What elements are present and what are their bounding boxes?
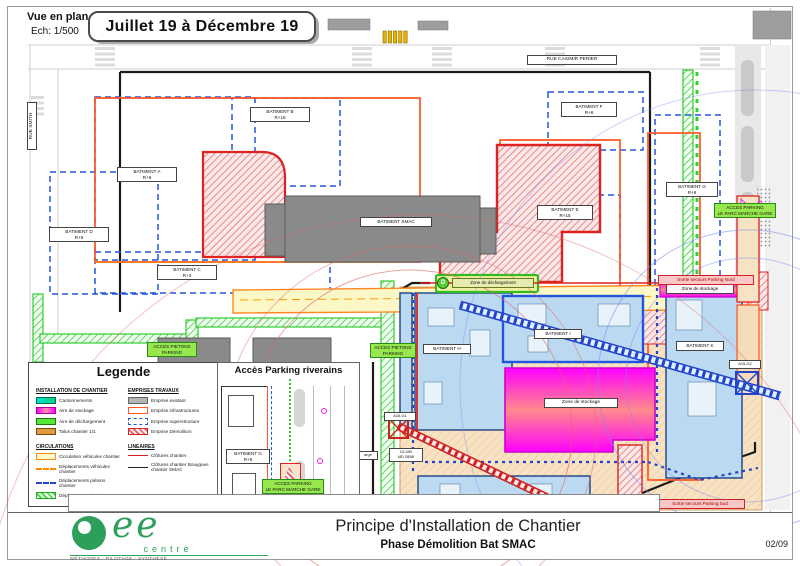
building-label-k: BATIMENT K [676, 341, 724, 351]
exit-label-text: Sortie secours Parking Nord [677, 277, 734, 282]
company-logo-subtext: centre [68, 544, 268, 554]
access-label-line: PARKING [372, 351, 414, 357]
crane-note-line: MD 285B [391, 455, 421, 460]
building-name: BATIMENT F [576, 104, 603, 109]
building-label-a: BATIMENT AR+6 [117, 167, 177, 182]
demolition-swatch [128, 428, 148, 435]
building-level: R+16 [252, 115, 308, 121]
gold-crossing-marks [383, 31, 407, 43]
building-level: R+6 [668, 190, 716, 196]
legend-section-heading: LINEAIRES [128, 444, 214, 450]
sortie-secours-sud-label: Sortie secours Parking Sud [655, 499, 745, 509]
building-label-f: BATIMENT FR+6 [561, 102, 617, 117]
legend-item: Emprise superstructure [128, 418, 214, 425]
talus-swatch [36, 428, 56, 435]
building-level: R+3 [159, 273, 215, 279]
drawing-sheet: Vue en plan Ech: 1/500 Juillet 19 à Déce… [0, 0, 800, 566]
inset-curb-line [344, 386, 345, 506]
building-name: BATIMENT G [234, 451, 262, 456]
pietons-dashed-swatch [36, 482, 56, 484]
zone-label-text: Zone de stockage [562, 400, 600, 405]
circulation-swatch [36, 453, 56, 460]
inset-acces-parking-label: ACCES PARKINGLE PARC MARCHE GARE [262, 479, 324, 494]
access-label-line: ACCES PIETONS [374, 345, 411, 350]
acces-parking-marche-gare-label: ACCES PARKINGLE PARC MARCHE GARE [714, 203, 776, 218]
legend-item-label: Emprise infrastructures [151, 408, 199, 413]
building-label-smac: BATIMENT SMAC [360, 217, 432, 227]
legend-item: Déplacements piétons chantier [36, 478, 122, 489]
street-label-text: RUE CASIMIR PERIER [547, 57, 598, 62]
legend-column-left: INSTALLATION DE CHANTIER Cantonnements A… [36, 384, 122, 502]
superstructure-swatch [128, 418, 148, 425]
legend-item-label: Clôtures chantier Bouygues chantier SMAC [151, 462, 214, 473]
legend-item-label: Emprise superstructure [151, 419, 199, 424]
inset-title: Accès Parking riverains [218, 365, 359, 376]
building-label-h: BATIMENT H [423, 344, 471, 354]
building-label-g: BATIMENT GR+6 [666, 182, 718, 197]
logo-divider-line [70, 555, 268, 556]
company-logo-text: ee [112, 505, 161, 546]
building-level: R+15 [539, 213, 591, 219]
building-level: R+6 [563, 110, 615, 116]
acces-pietons-parking-label-1: ACCES PIETONSPARKING [147, 342, 197, 357]
access-label-line: LE PARC MARCHE GARE [264, 487, 322, 493]
company-tagline: MÉTHODES - PILOTAGE - SYNTHÈSE [70, 557, 268, 562]
inset-building-detail [228, 395, 254, 427]
building-name: BATIMENT C [173, 267, 200, 272]
building-name: BATIMENT I [545, 331, 570, 336]
access-label-line: LE PARC MARCHE GARE [716, 211, 774, 217]
sidewalk-slabs [328, 11, 791, 39]
crane-note-label: G1-MDMD 285B [389, 448, 423, 462]
zone-dechargement-label: Zone de déchargement [452, 278, 534, 288]
building-name: BATIMENT K [686, 343, 713, 348]
legend-item: Emprise Démolition [128, 428, 214, 435]
legend-item: Cantonnements [36, 397, 122, 404]
access-label-line: ACCES PARKING [726, 205, 763, 210]
legend-item: Clôtures chantier [128, 453, 214, 458]
building-label-d: BATIMENT DR+6 [49, 227, 109, 242]
drawing-title: Principe d'Installation de Chantier [258, 517, 658, 536]
partial-label: arge [358, 451, 378, 460]
building-label-e: BATIMENT ER+15 [537, 205, 593, 220]
building-name: BATIMENT D [65, 229, 92, 234]
legend-item: Déplacements véhicules chantier [36, 464, 122, 475]
access-label-line: ACCES PARKING [274, 481, 311, 486]
zone-stockage-main-label: Zone de stockage [544, 398, 618, 408]
street-label-rue-smith: RUE SMITH [27, 102, 37, 150]
dechargement-swatch [36, 418, 56, 425]
page-number: 02/09 [708, 539, 788, 549]
crane-label-a15-g2: A15-G2 [729, 360, 761, 369]
legend-item: Emprise existant [128, 397, 214, 404]
dechargement-d-marker: D [437, 277, 449, 289]
building-label-i: BATIMENT I [534, 329, 582, 339]
legend-item-label: Emprise existant [151, 398, 186, 403]
building-name: BATIMENT SMAC [377, 219, 414, 224]
legend-item: Circulation véhicules chantier [36, 453, 122, 460]
zone-label-text: Zone de déchargement [470, 280, 515, 285]
crane-id-text: A15-G2 [738, 361, 751, 366]
inset-marker-circle [317, 458, 323, 464]
legend-item: Clôtures chantier Bouygues chantier SMAC [128, 462, 214, 473]
inset-road-median [294, 389, 305, 427]
infrastructures-swatch [128, 407, 148, 414]
legend-item-label: Cantonnements [59, 398, 92, 403]
legend-item-label: Déplacements piétons chantier [59, 478, 122, 489]
building-level: R+6 [51, 235, 107, 241]
building-level: R+6 [228, 457, 268, 463]
acces-pietons-parking-label-2: ACCES PIETONSPARKING [370, 343, 416, 358]
parking-ramps [737, 196, 762, 385]
building-name: BATIMENT E [551, 207, 578, 212]
legend-item-label: Talus chantier 1/1 [59, 429, 96, 434]
street-label-rue-casimir-perier: RUE CASIMIR PERIER [527, 55, 617, 65]
legend-panel: Legende INSTALLATION DE CHANTIER Cantonn… [28, 362, 219, 507]
partial-label-text: arge [364, 452, 372, 457]
inset-building-g-label: BATIMENT GR+6 [226, 449, 270, 464]
crane-label-a15-g1: A15-G1 [384, 412, 416, 421]
inset-marker-circle [321, 408, 327, 414]
legend-item-label: Emprise Démolition [151, 429, 192, 434]
building-name: BATIMENT B [266, 109, 293, 114]
legend-item-label: Clôtures chantier [151, 453, 186, 458]
legend-item: Talus chantier 1/1 [36, 428, 122, 435]
clotures-bouygues-swatch [128, 467, 148, 468]
clotures-chantier-swatch [128, 455, 148, 456]
legend-item: Aire de stockage [36, 407, 122, 414]
exit-label-text: Sortie secours Parking Sud [672, 501, 728, 506]
legend-item-label: Aire de déchargement [59, 419, 105, 424]
cantonnements-swatch [36, 397, 56, 404]
access-label-line: ACCES PIETONS [153, 344, 190, 349]
building-label-b: BATIMENT BR+16 [250, 107, 310, 122]
sortie-secours-nord-label: Sortie secours Parking Nord [658, 275, 754, 285]
zone-stockage-north-label: Zone de stockage [666, 284, 734, 294]
stockage-swatch [36, 407, 56, 414]
crane-id-text: A15-G1 [393, 413, 406, 418]
inset-panel-acces-parking-riverains: Accès Parking riverains BATIMENT GR+6 AC… [217, 362, 360, 510]
legend-section-heading: INSTALLATION DE CHANTIER [36, 388, 122, 394]
building-name: BATIMENT G [678, 184, 706, 189]
building-name: BATIMENT A [134, 169, 161, 174]
building-label-c: BATIMENT CR+3 [157, 265, 217, 280]
legend-item: Emprise infrastructures [128, 407, 214, 414]
building-level: R+6 [119, 175, 175, 181]
zone-label-text: Zone de stockage [682, 286, 719, 291]
inset-curb-line [330, 386, 331, 506]
title-block: ee centre MÉTHODES - PILOTAGE - SYNTHÈSE… [8, 512, 792, 559]
legend-item: Aire de déchargement [36, 418, 122, 425]
drawing-subtitle: Phase Démolition Bat SMAC [258, 539, 658, 551]
existant-swatch [128, 397, 148, 404]
legend-section-heading: EMPRISES TRAVAUX [128, 388, 214, 394]
vehicules-dashed-swatch [36, 468, 56, 470]
street-label-text: RUE SMITH [29, 113, 34, 139]
legend-title: Legende [29, 364, 218, 379]
building-name: BATIMENT H [433, 346, 460, 351]
legend-column-right: EMPRISES TRAVAUX Emprise existant Empris… [128, 384, 214, 476]
legend-item-label: Déplacements véhicules chantier [59, 464, 122, 475]
legend-item-label: Circulation véhicules chantier [59, 454, 120, 459]
legend-section-heading: CIRCULATIONS [36, 444, 122, 450]
legend-item-label: Aire de stockage [59, 408, 94, 413]
riverains-swatch [36, 492, 56, 499]
access-label-line: PARKING [149, 350, 195, 356]
